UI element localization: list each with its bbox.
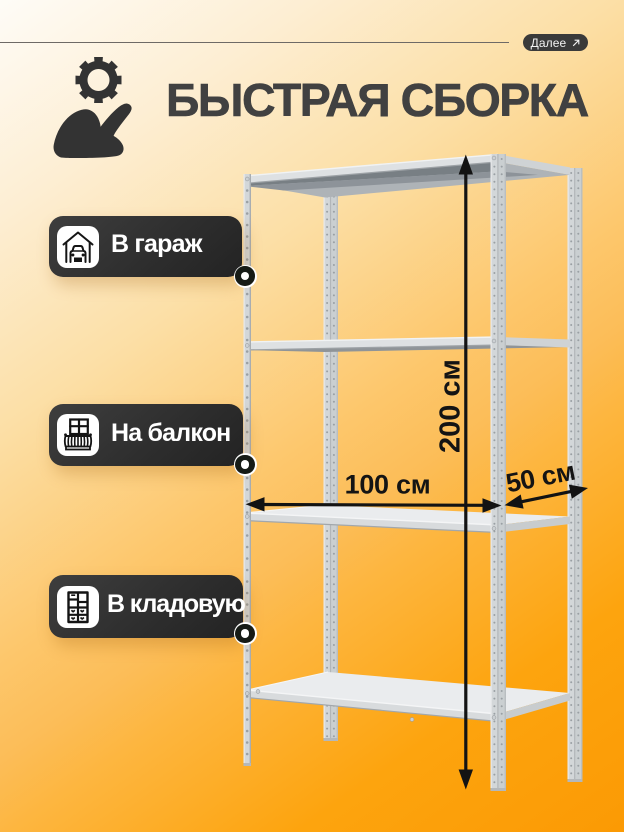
svg-text:200 см: 200 см <box>435 359 467 453</box>
svg-text:100 см: 100 см <box>345 470 431 500</box>
